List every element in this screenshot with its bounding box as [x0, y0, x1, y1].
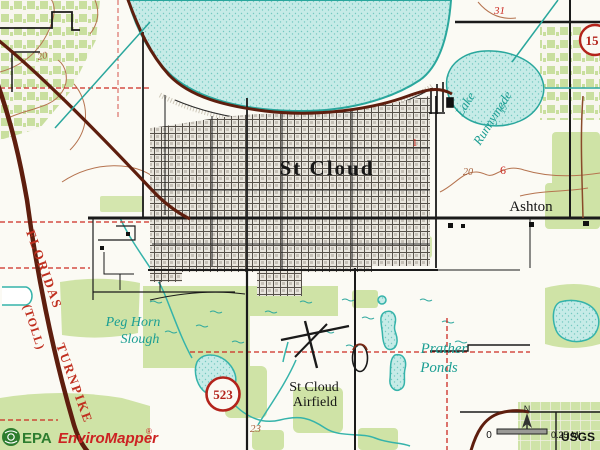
- red-number-31: 31: [493, 5, 505, 17]
- city-street-grid: [150, 96, 430, 296]
- airfield-label-line2: Airfield: [293, 395, 337, 410]
- prather-label-line2: Ponds: [419, 360, 458, 376]
- city-label: St Cloud: [280, 156, 375, 180]
- scale-zero-label: 0: [486, 430, 492, 441]
- usgs-attribution: USGS: [561, 430, 595, 444]
- route-shield-523: 523: [207, 378, 240, 411]
- peg-horn-label-line1: Peg Horn: [105, 315, 161, 330]
- enviromapper-wordmark: EnviroMapper: [58, 430, 159, 447]
- ashton-label: Ashton: [509, 199, 553, 215]
- north-label: N: [524, 404, 531, 414]
- topo-map[interactable]: 523 15 St Cloud Ashton St Cloud Airfield…: [0, 0, 600, 450]
- registered-mark: ®: [146, 427, 152, 436]
- route-shield-15: 15: [580, 25, 600, 55]
- prather-label-line1: Prather: [420, 341, 468, 357]
- topo-map-viewport[interactable]: 523 15 St Cloud Ashton St Cloud Airfield…: [0, 0, 600, 450]
- epa-enviromapper-logo[interactable]: EPA EnviroMapper ®: [2, 427, 159, 447]
- route-523-number: 523: [213, 387, 233, 402]
- epa-wordmark: EPA: [22, 430, 52, 447]
- airfield-label-line1: St Cloud: [289, 380, 338, 395]
- route-15-number: 15: [586, 33, 600, 48]
- peg-horn-label-line2: Slough: [121, 332, 160, 347]
- red-number-1: 1: [412, 137, 418, 149]
- red-number-6: 6: [500, 163, 506, 177]
- section-number-23: 23: [250, 423, 262, 435]
- contour-number-east: 20: [463, 167, 473, 178]
